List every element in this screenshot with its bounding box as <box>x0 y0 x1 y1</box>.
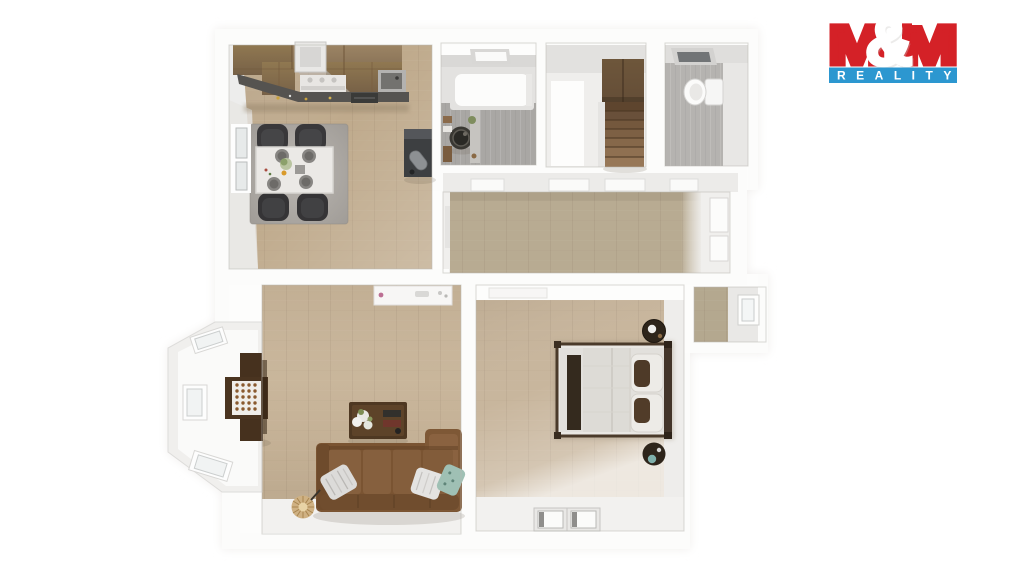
svg-text:REALITY: REALITY <box>837 69 962 83</box>
